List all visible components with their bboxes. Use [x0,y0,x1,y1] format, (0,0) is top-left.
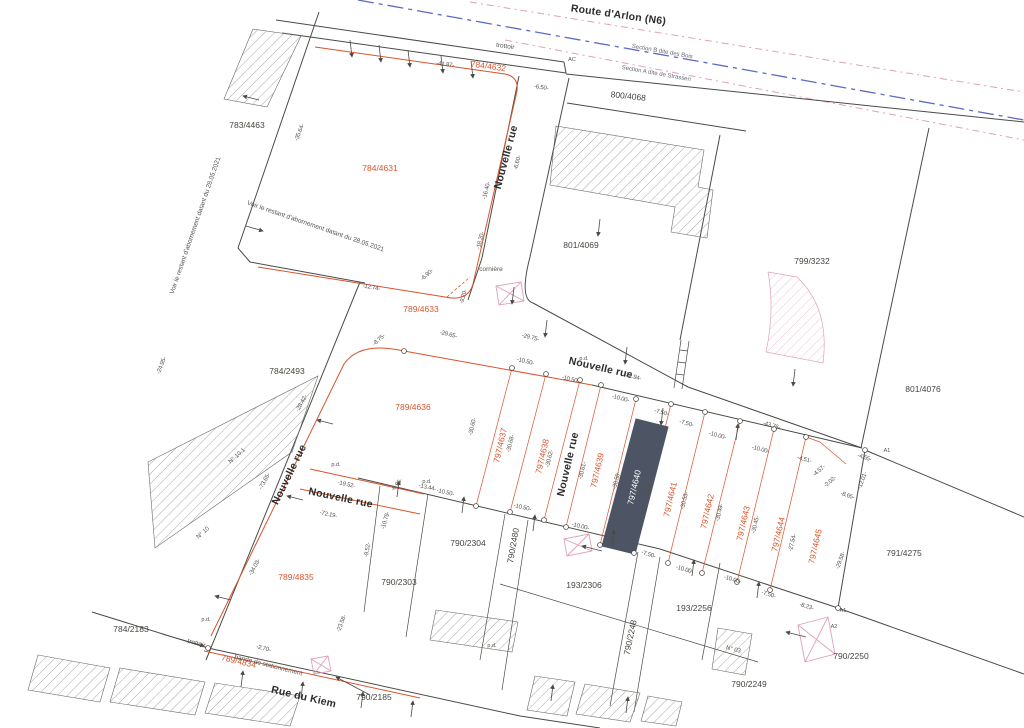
parcel-4068-south-line [567,103,746,131]
boundary-stones-circle [542,518,547,523]
dimension-label-34-03: -34.03- [248,558,262,576]
lot-label-789-4636: 789/4636 [395,402,431,412]
parcel-label-193-2256: 193/2256 [676,603,712,613]
survey-arrows-line [241,671,243,687]
survey-arrows-line [379,45,381,62]
lot-label-784-4631: 784/4631 [362,163,398,173]
dimension-label-8-75: -8.75- [372,333,387,347]
boundary-stones-circle [666,561,671,566]
dimension-label-30-49: -30.49- [715,503,725,522]
corniere-symbols [311,282,835,674]
parcel-label-800-4068: 800/4068 [610,89,647,103]
dimension-label-73-65: -73.65- [258,472,272,490]
boundary-stones-circle [738,419,743,424]
route-arlon-axis [358,0,1024,140]
marker-label-p-d: p.d. [201,617,211,623]
survey-arrows-line [545,320,547,337]
section-label-section-b-dite-des-bois: Section B dite des Bois [631,44,693,61]
marker-label-p-d: p.d. [579,356,589,362]
lot-4631-south-edge [258,267,473,298]
marker-label-a1: A1 [884,448,891,454]
survey-arrows-line [462,497,464,513]
boundary-stones-circle [703,410,708,415]
lot-label-797-4644: 797/4644 [769,516,787,553]
marker-label-p-d: p.d. [487,643,497,649]
section-label-section-a-dite-de-strassen: Section A dite de Strassen [621,65,691,83]
hatch-fan-3232 [766,272,824,363]
survey-arrows-line [757,582,759,598]
dimension-label-4-55: -4.55- [856,453,872,463]
trottoir-inner-line [282,33,566,73]
dimension-label-16-40: -16.40- [482,181,492,200]
hatch-building-4069 [550,126,713,238]
boundary-stones-circle [632,551,637,556]
street-label-route-d-arlon-n6: Route d'Arlon (N6) [570,2,667,27]
dimension-label-10-00: -10.00- [675,565,694,576]
boundary-stones-circle [508,510,513,515]
dimension-label-19-52: -19.52- [337,480,356,490]
dimension-label-4-57: -4.57- [812,464,827,478]
dimension-label-7-50: -7.50- [653,408,669,418]
boundary-stones-circle [599,383,604,388]
survey-arrows-line [598,219,600,236]
parcel-label-790-2250: 790/2250 [833,651,869,661]
dimension-label-2-70: -2.70- [255,644,271,653]
parcel-4275-north-edge [865,450,1024,517]
lot-label-797-4641: 797/4641 [661,481,679,518]
annotation-label-voir-le-restant-d-abornement-datant-du-28-05-2021: Voir le restant d'abornement datant du 2… [246,200,385,254]
dimension-label-10-00: -10.00- [751,445,770,455]
marker-label-a1: A1 [840,608,847,614]
dimension-label-10-79: -10.79- [381,511,392,530]
hatched-areas [28,29,824,726]
cadastral-plan-canvas: Route d'Arlon (N6)Nouvelle rueNouvelle r… [0,0,1024,728]
parcel-4275-west-edge [838,450,865,608]
parcel-label-783-4463: 783/4463 [229,120,265,130]
dimension-label-22-94: -22.94- [623,372,642,383]
survey-arrows-line [246,226,263,231]
parcel-label-801-4076: 801/4076 [905,384,941,394]
dimension-label-35-64: -35.64- [294,123,306,142]
hatch-top-left-strip [224,29,301,107]
dimension-label-7-50: -7.50- [760,590,776,600]
dimension-label-12-01: -12.01- [857,471,869,490]
dimension-label-29-65: -29.65- [439,330,458,340]
parcel-3232-east-line [861,128,929,448]
survey-arrows-line [317,420,333,424]
dimension-label-10-00: -10.00- [611,394,630,404]
boundary-stones-circle [700,571,705,576]
survey-arrows-line [411,701,413,717]
parcel-label-801-4069: 801/4069 [563,240,599,250]
marker-label-p-d: p.d. [331,462,341,468]
trottoir-outer-line [276,20,564,62]
dimension-label-23-58: -23.58- [336,614,348,633]
dimension-label-30-61: -30.61- [578,461,588,480]
lot-label-797-4642: 797/4642 [698,493,716,530]
dimension-label-9-20: -9.20- [459,289,468,305]
dimension-label-2-02: -2.02- [823,475,838,489]
street-label-nouvelle-rue: Nouvelle rue [555,431,581,497]
corniere-box-3 [798,617,835,662]
boundary-stones-circle [402,349,407,354]
lot-label-789-4835: 789/4835 [278,572,314,582]
hatch-strip-sw1 [28,655,110,702]
parcel-label-790-2185: 790/2185 [356,692,392,702]
wall-ladder [674,340,689,389]
dimension-label-6-50: -6.50- [534,84,549,92]
dimension-label-10-50: -10.50- [516,357,535,367]
dimension-label-24-95: -24.95- [156,356,168,375]
marker-label-p-d: p.d. [422,479,432,485]
hatch-strip-b [576,684,640,722]
boundary-stones-circle [669,402,674,407]
road-edge-dash-north [470,2,1024,92]
parcel-label-790-2304: 790/2304 [450,538,486,548]
dimension-label-8-65: -8.65- [839,491,855,501]
parcel-label-790-2248: 790/2248 [621,619,638,656]
lot-label-797-4645: 797/4645 [806,528,824,565]
dimension-label-6-95: -6.95- [390,478,404,493]
survey-arrows-line [533,515,535,531]
survey-arrows-line [625,347,627,364]
parcel-label-790-2249: 790/2249 [731,679,767,689]
parcel-label-790-2303: 790/2303 [381,577,417,587]
dimension-label-10-00: -10.00- [723,575,742,586]
parcel-4275-south-edge [838,608,1024,674]
dimension-label-27-54: -27.54- [788,533,798,552]
dimension-label-7-50: -7.50- [678,419,694,429]
lot-4632-front-and-east-edge [315,47,517,284]
survey-arrows [162,40,806,717]
dimension-label-30-60: -30.60- [468,417,478,436]
parcel-label-790-2480: 790/2480 [505,527,521,564]
survey-arrows-line [287,496,303,500]
boundary-stones-circle [598,543,603,548]
dimension-label-10-00: -10.00- [708,431,727,441]
dimension-label-7-50: -7.50- [640,550,656,560]
parcel-label-784-2493: 784/2493 [269,366,305,376]
hatch-strip-d [430,610,518,652]
lot-label-789-4633: 789/4633 [403,304,439,314]
marker-label-ac: AC [568,57,576,63]
corniere-box-2 [564,534,592,556]
survey-arrows-line [786,632,806,637]
boundary-stones-circle [863,448,868,453]
lot-4645-north-chamfer [806,437,846,464]
parcel-label-791-4275: 791/4275 [886,548,922,558]
road-edge-dash-south [505,40,1024,140]
survey-arrows-line [215,596,231,600]
survey-arrows-line [736,424,738,440]
hatch-strip-c [641,696,682,726]
parcel-label-799-3232: 799/3232 [794,256,830,266]
dimension-label-29-75: -29.75- [521,333,540,343]
lot-label-797-4643: 797/4643 [734,505,752,542]
dimension-label-10-50: -10.50- [513,503,532,513]
dimension-label-12-74: -12.74- [362,283,381,292]
annotation-label-trottoir: trottoir [496,42,516,52]
annotation-label-trottoir: trottoir [187,638,207,650]
lot-label-797-4639: 797/4639 [588,452,606,489]
corniere-box-1 [496,282,524,305]
hatch-strip-a [527,676,575,716]
survey-arrows-line [408,50,410,67]
strip-2248-east-line [634,557,660,712]
lot-label-797-4637: 797/4637 [491,427,509,464]
dimension-label-6-90: -6.90- [420,268,435,282]
dimension-label-10-50: -10.50- [561,375,580,385]
parcel-label-193-2306: 193/2306 [566,580,602,590]
building-label-n-10: N° 10 [196,526,212,541]
dimension-label-4-51: -4.51- [796,455,812,465]
street-label-nouvelle-rue: Nouvelle rue [307,485,373,510]
boundary-stones-circle [510,366,515,371]
dimension-label-41-87: -41.87- [436,61,454,69]
survey-arrows-line [793,369,795,386]
boundary-stones-circle [564,525,569,530]
marker-label-a2: A2 [831,624,838,630]
boundary-stones-circle [634,397,639,402]
parcel-2303-east-line [406,494,428,637]
annotation-label-corni-re: cornière [479,266,503,273]
boundary-stones-circle [804,435,809,440]
hatch-strip-sw2 [110,668,205,715]
dimension-label-30-53: -30.53- [680,491,690,510]
boundary-stones-circle [474,504,479,509]
annotation-label-voir-le-restant-d-abornement-datant-du-28-05-2021: Voir le restant d'abornement datant du 2… [169,156,223,295]
dimension-label-6-60: -6.60- [513,155,522,171]
dimension-label-8-23: -8.23- [798,602,814,612]
boundary-stones-circle [544,372,549,377]
boundary-stones-circle [206,646,211,651]
dimension-label-72-19: -72.19- [319,510,338,520]
dimension-label-30-68: -30.68- [506,434,516,453]
parcel-label-784-2183: 784/2183 [113,624,149,634]
